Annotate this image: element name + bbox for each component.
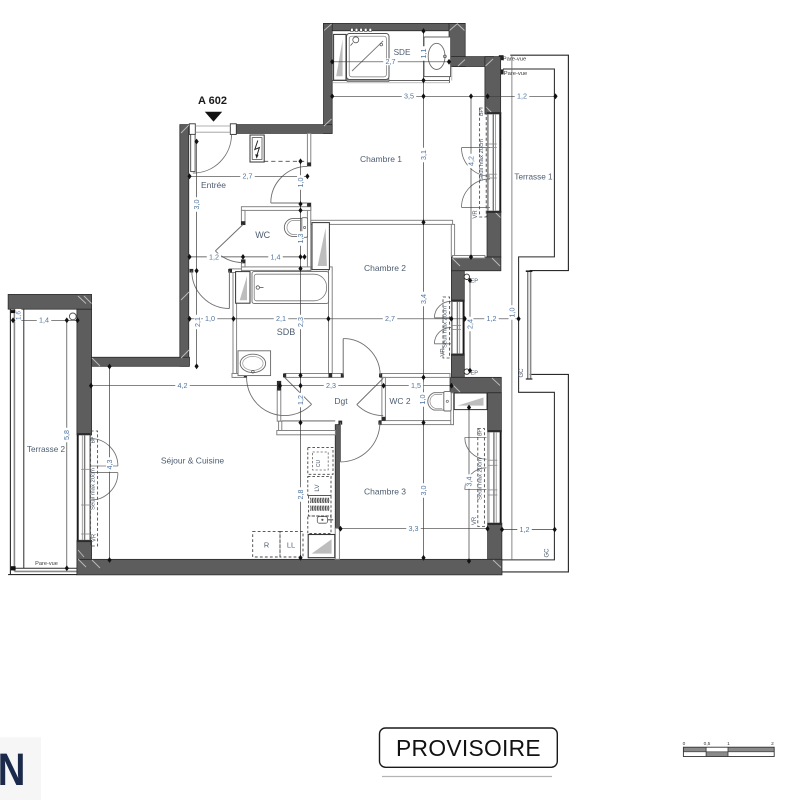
svg-text:Chambre 3: Chambre 3: [364, 487, 406, 497]
svg-text:Pare-vue: Pare-vue: [504, 71, 528, 77]
svg-text:1,0: 1,0: [507, 308, 516, 318]
svg-text:GC: GC: [519, 368, 525, 378]
svg-text:BP: BP: [477, 429, 483, 436]
svg-text:R: R: [264, 541, 269, 550]
svg-text:Séjour & Cuisine: Séjour & Cuisine: [161, 455, 225, 465]
svg-text:EP: EP: [471, 371, 479, 377]
svg-text:2,8: 2,8: [296, 490, 305, 500]
svg-text:VR: VR: [441, 348, 447, 357]
svg-text:1,2: 1,2: [487, 314, 497, 323]
svg-text:WC: WC: [255, 230, 270, 240]
svg-text:2,1: 2,1: [193, 317, 202, 327]
svg-text:Dgt: Dgt: [334, 396, 348, 406]
svg-text:WC 2: WC 2: [389, 396, 411, 406]
svg-text:0,5: 0,5: [704, 741, 711, 747]
svg-text:2,7: 2,7: [386, 57, 396, 66]
svg-text:1,2: 1,2: [520, 525, 530, 534]
svg-text:PROVISOIRE: PROVISOIRE: [396, 735, 541, 761]
svg-text:1,1: 1,1: [419, 49, 428, 59]
svg-text:1,4: 1,4: [39, 316, 49, 325]
svg-text:4,2: 4,2: [178, 381, 188, 390]
svg-text:BP: BP: [479, 109, 485, 116]
svg-text:1,6: 1,6: [15, 311, 22, 320]
svg-text:1,3: 1,3: [296, 234, 305, 244]
svg-text:A 602: A 602: [198, 95, 227, 107]
svg-text:Pare-vue: Pare-vue: [35, 561, 58, 567]
svg-text:CU: CU: [316, 460, 322, 468]
svg-text:1: 1: [727, 741, 730, 747]
svg-text:LL: LL: [287, 541, 295, 550]
svg-text:1,0: 1,0: [296, 178, 305, 188]
svg-text:1,2: 1,2: [517, 92, 527, 101]
svg-text:3,4: 3,4: [464, 477, 473, 487]
svg-text:2,3: 2,3: [296, 317, 305, 327]
svg-text:3,3: 3,3: [409, 524, 419, 533]
svg-text:5,8: 5,8: [62, 430, 71, 440]
svg-text:1,2: 1,2: [209, 252, 219, 261]
svg-text:4,3: 4,3: [105, 460, 114, 470]
svg-text:Seuil max 20cm: Seuil max 20cm: [443, 306, 449, 348]
svg-text:3,0: 3,0: [419, 486, 428, 496]
svg-text:EP: EP: [471, 278, 479, 284]
svg-text:Chambre 1: Chambre 1: [360, 154, 402, 164]
svg-text:BP: BP: [90, 436, 96, 443]
svg-text:2,4: 2,4: [465, 319, 474, 329]
svg-text:1,4: 1,4: [271, 252, 281, 261]
svg-text:Pare-vue: Pare-vue: [503, 57, 527, 63]
svg-text:Chambre 2: Chambre 2: [364, 263, 406, 273]
svg-text:Seuil max 20cm: Seuil max 20cm: [477, 458, 483, 500]
svg-text:GC: GC: [545, 548, 551, 558]
svg-text:VR: VR: [472, 516, 478, 525]
svg-text:2,7: 2,7: [243, 172, 253, 181]
svg-text:2,1: 2,1: [276, 314, 286, 323]
svg-text:Seuil max 20cm: Seuil max 20cm: [90, 468, 96, 510]
svg-text:0: 0: [683, 741, 686, 747]
svg-text:3,0: 3,0: [192, 200, 201, 210]
svg-text:3,5: 3,5: [404, 92, 414, 101]
svg-text:LV: LV: [314, 484, 321, 492]
svg-text:Terrasse 2: Terrasse 2: [27, 445, 66, 454]
svg-text:SDB: SDB: [277, 327, 296, 337]
svg-text:1,5: 1,5: [411, 381, 421, 390]
svg-text:3,4: 3,4: [419, 294, 428, 304]
svg-text:2,3: 2,3: [326, 381, 336, 390]
svg-text:Terrasse 1: Terrasse 1: [514, 173, 553, 182]
svg-text:N: N: [0, 744, 25, 795]
svg-text:Seuil max 20cm: Seuil max 20cm: [479, 139, 485, 181]
svg-text:Entrée: Entrée: [201, 180, 226, 190]
svg-text:1,2: 1,2: [296, 395, 305, 405]
svg-text:3,1: 3,1: [419, 150, 428, 160]
svg-text:1,0: 1,0: [205, 314, 215, 323]
svg-text:1,0: 1,0: [418, 395, 427, 405]
svg-text:VR: VR: [473, 210, 479, 219]
svg-text:SDE: SDE: [394, 48, 411, 57]
svg-text:4,2: 4,2: [466, 156, 475, 166]
svg-text:VR: VR: [92, 533, 98, 542]
svg-text:2: 2: [771, 741, 774, 747]
svg-text:2,7: 2,7: [385, 314, 395, 323]
